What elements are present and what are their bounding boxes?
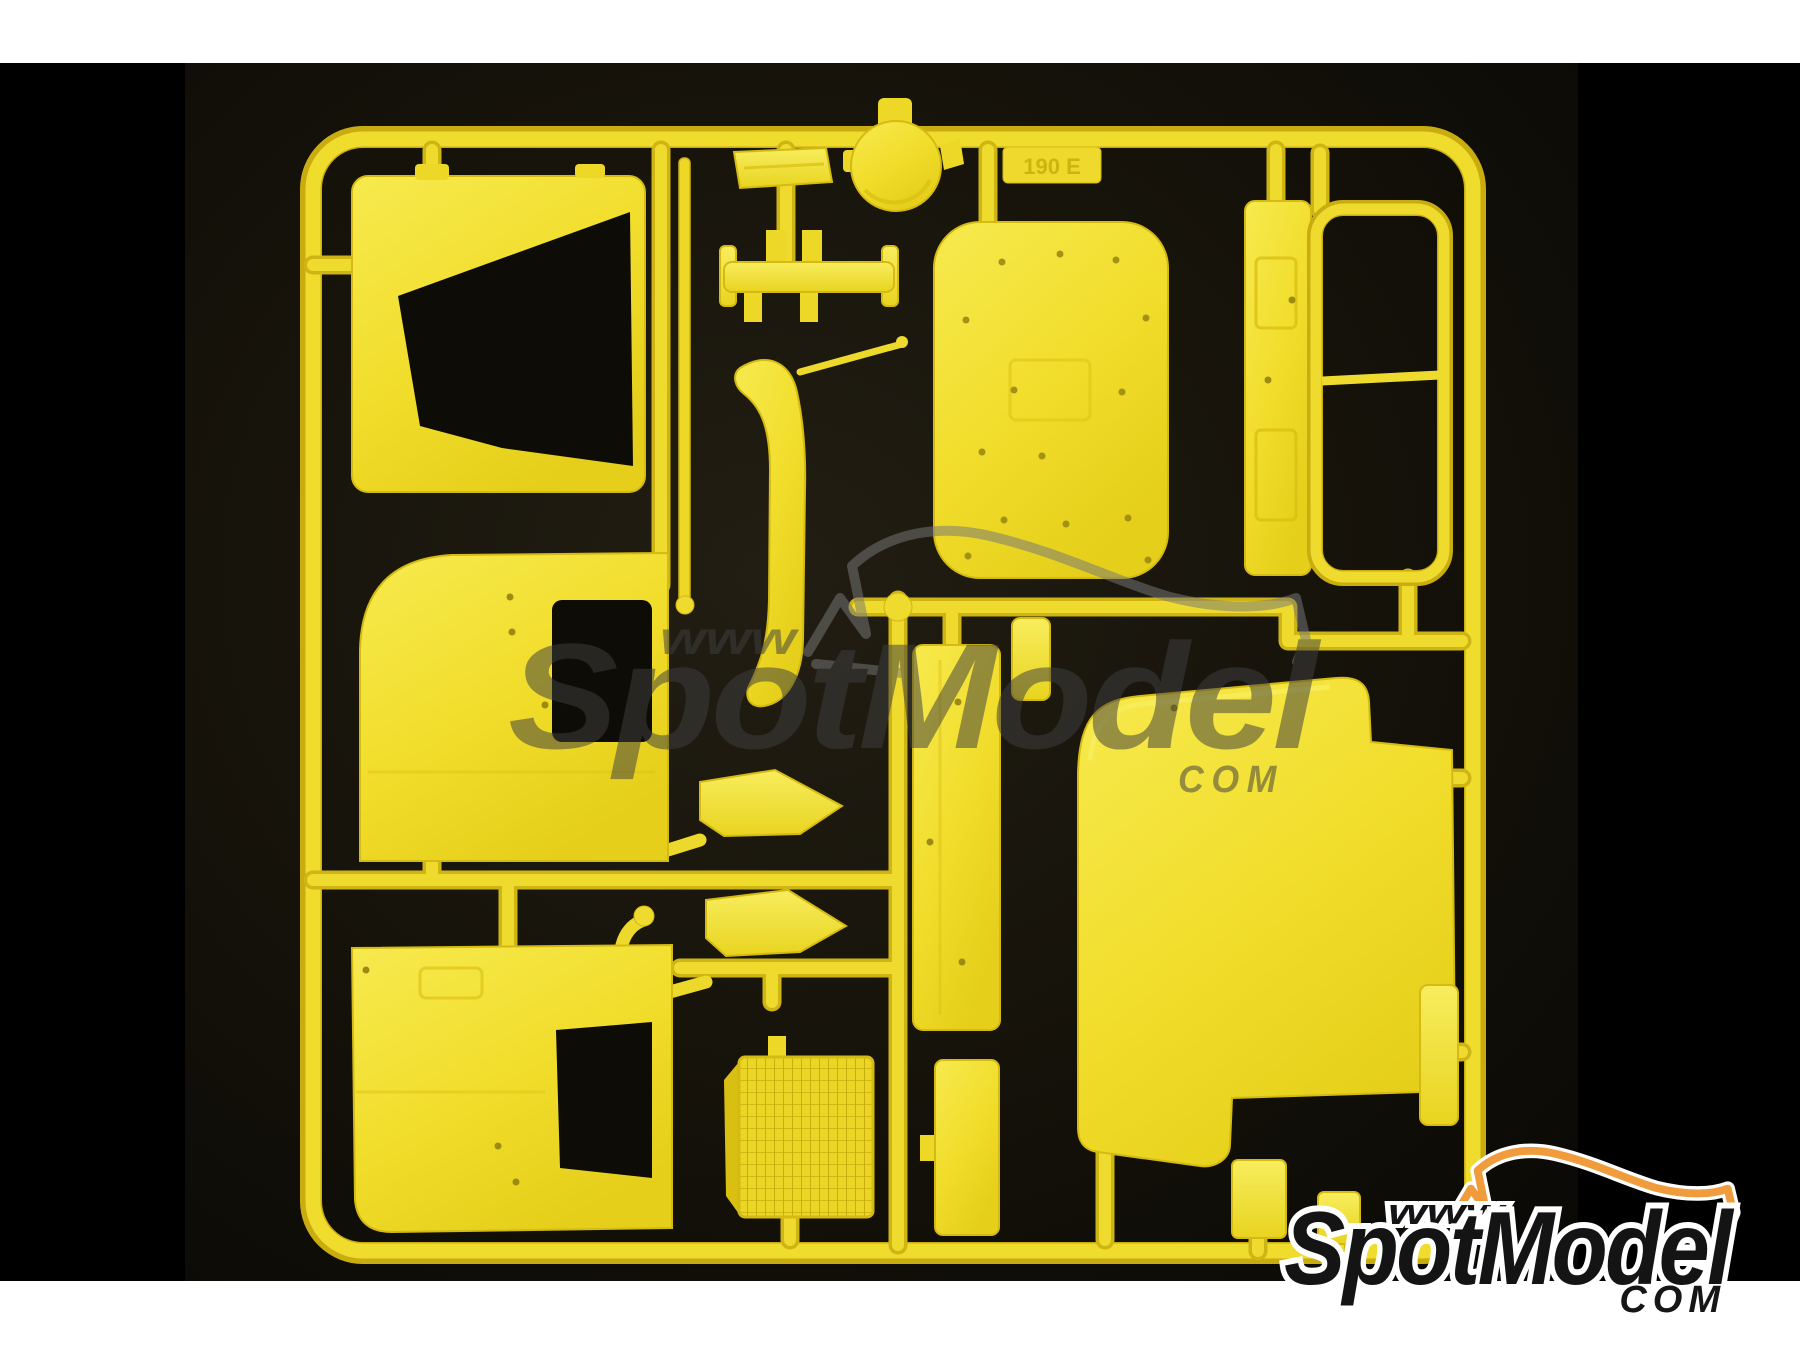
door-window-opening <box>556 1022 652 1178</box>
left-black-bar <box>0 63 185 1281</box>
right-black-bar <box>1578 63 1800 1281</box>
part-sun-visor-tray <box>734 148 832 188</box>
bottom-white-strip <box>0 1281 1800 1350</box>
part-cab-side-panel-lower <box>352 945 672 1232</box>
embossed-tag: 190 E <box>1003 147 1101 183</box>
top-white-strip <box>0 0 1800 63</box>
part-rear-cab-panel <box>352 164 645 492</box>
watermark-tld: COM <box>1178 759 1284 801</box>
part-dashboard-strip <box>1245 201 1311 575</box>
runner-node <box>634 906 654 926</box>
part-cab-roof-panel <box>934 222 1168 578</box>
part-small-bracket-b <box>1318 1192 1360 1244</box>
part-radiator-grille <box>724 1036 873 1217</box>
part-right-side-trim-strip <box>1420 985 1458 1125</box>
watermark-brand: SpotModel <box>508 612 1322 780</box>
product-photo-page: 190 E <box>0 0 1800 1350</box>
sprue-photo: 190 E <box>185 63 1578 1281</box>
sprue-marking: 190 E <box>1023 154 1081 179</box>
part-small-bracket-a <box>1232 1160 1286 1238</box>
